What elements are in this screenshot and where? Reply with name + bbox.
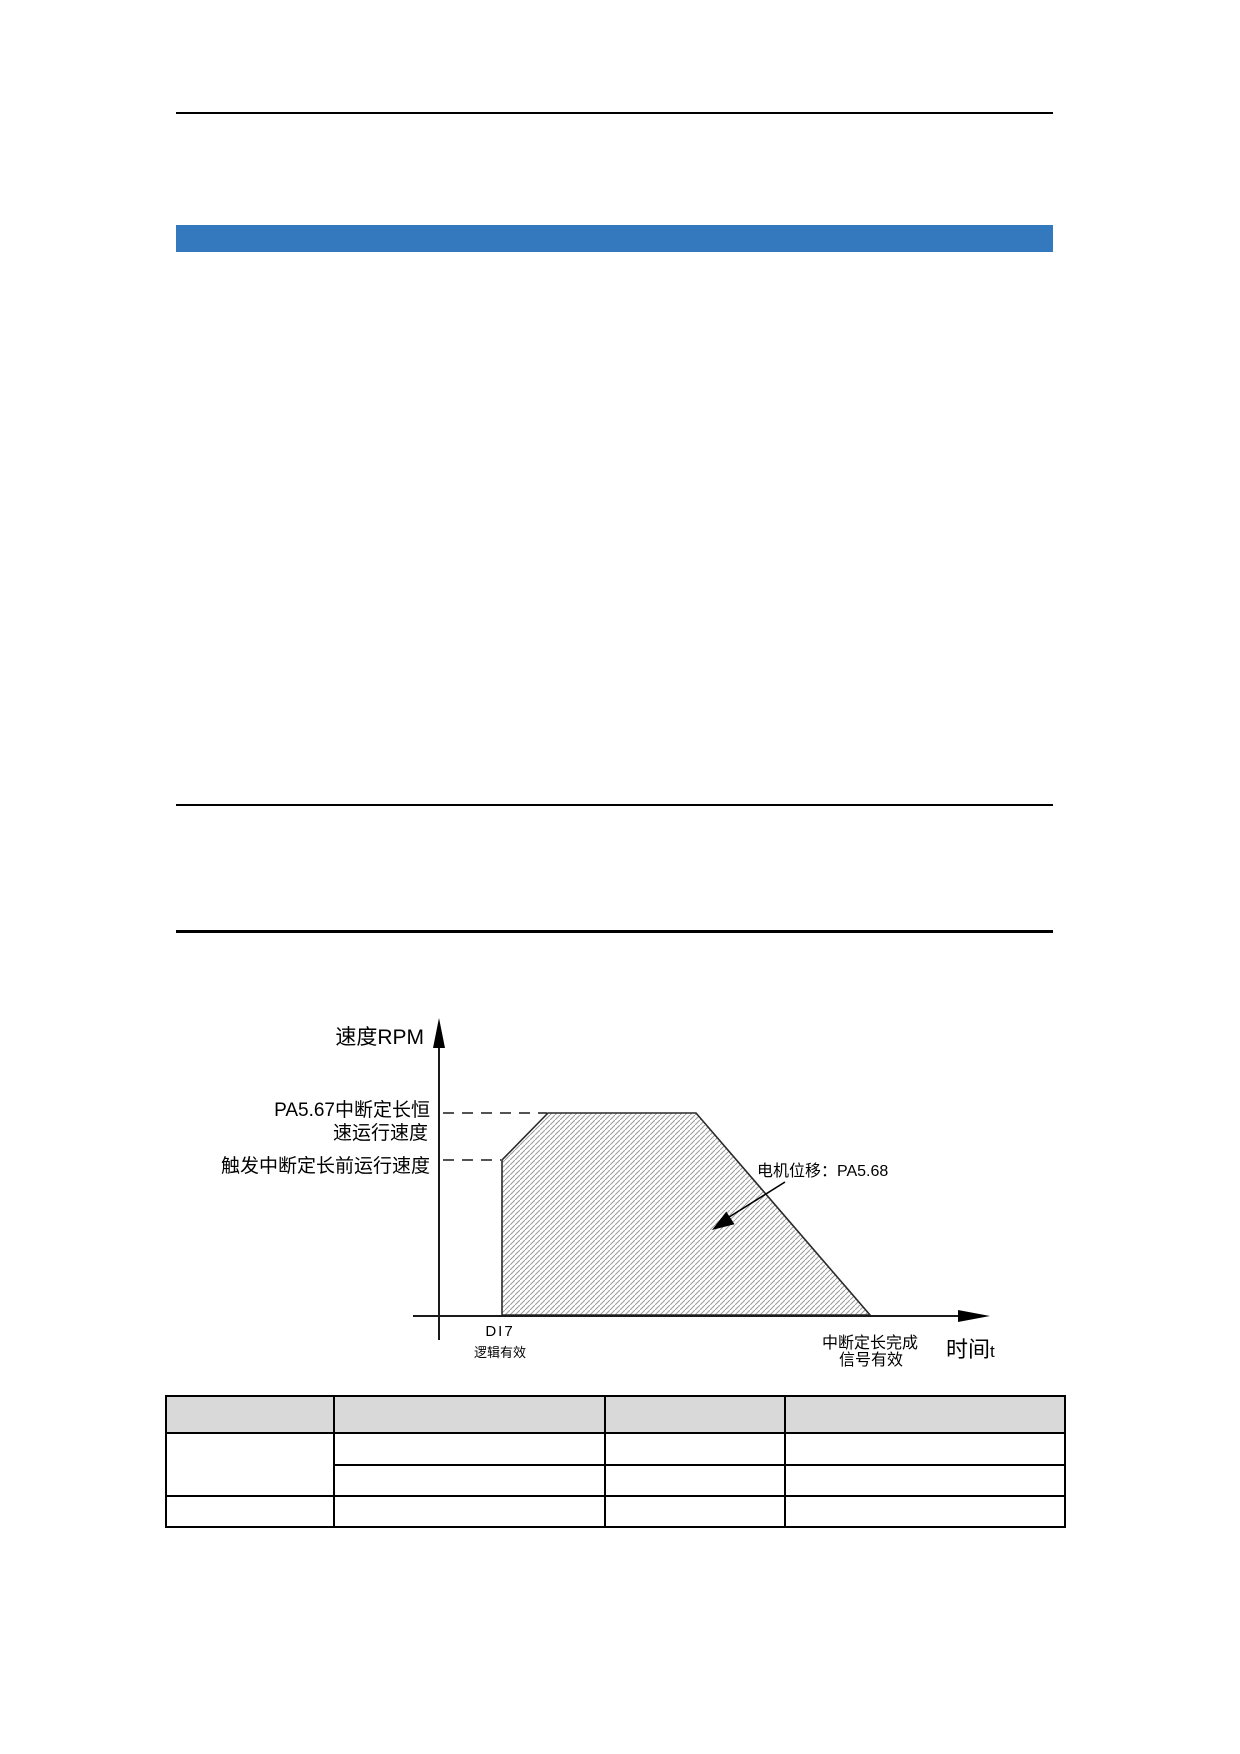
table-row <box>166 1496 1065 1527</box>
table-header-cell <box>605 1396 785 1433</box>
table-cell <box>605 1496 785 1527</box>
const-speed-label-line2: 速运行速度 <box>333 1122 428 1144</box>
trigger-speed-label: 触发中断定长前运行速度 <box>221 1155 430 1177</box>
table-cell <box>334 1465 605 1496</box>
table-header-row <box>166 1396 1065 1433</box>
middle-rule-upper <box>176 804 1053 806</box>
x-axis-arrow-icon <box>958 1310 990 1322</box>
y-axis-label: 速度RPM <box>335 1026 424 1049</box>
parameter-table <box>165 1395 1066 1528</box>
table-cell <box>166 1496 334 1527</box>
velocity-profile-shape <box>502 1113 870 1315</box>
motor-displacement-label: 电机位移：PA5.68 <box>757 1162 888 1180</box>
table-cell <box>334 1433 605 1465</box>
speed-time-diagram: 速度RPM PA5.67中断定长恒 速运行速度 触发中断定长前运行速度 电机位移… <box>150 1000 1050 1380</box>
complete-label-line2: 信号有效 <box>839 1351 903 1369</box>
section-header-bar <box>176 225 1053 252</box>
table-header-cell <box>334 1396 605 1433</box>
table-row <box>166 1433 1065 1465</box>
complete-label-line1: 中断定长完成 <box>822 1334 918 1352</box>
const-speed-label-line1: PA5.67中断定长恒 <box>274 1099 430 1121</box>
di7-label: DI7 <box>485 1323 514 1340</box>
table-cell <box>605 1465 785 1496</box>
middle-rule-lower <box>176 930 1053 933</box>
table-cell <box>334 1496 605 1527</box>
table-header-cell <box>785 1396 1065 1433</box>
table-cell <box>785 1433 1065 1465</box>
table-cell-merged <box>166 1433 334 1496</box>
x-axis-label: 时间t <box>946 1337 995 1362</box>
table-cell <box>605 1433 785 1465</box>
document-page: 速度RPM PA5.67中断定长恒 速运行速度 触发中断定长前运行速度 电机位移… <box>0 0 1240 1754</box>
y-axis-arrow-icon <box>433 1018 445 1048</box>
table-cell <box>785 1465 1065 1496</box>
top-rule <box>176 112 1053 114</box>
table-header-cell <box>166 1396 334 1433</box>
table-cell <box>785 1496 1065 1527</box>
di7-sub-label: 逻辑有效 <box>474 1345 526 1360</box>
